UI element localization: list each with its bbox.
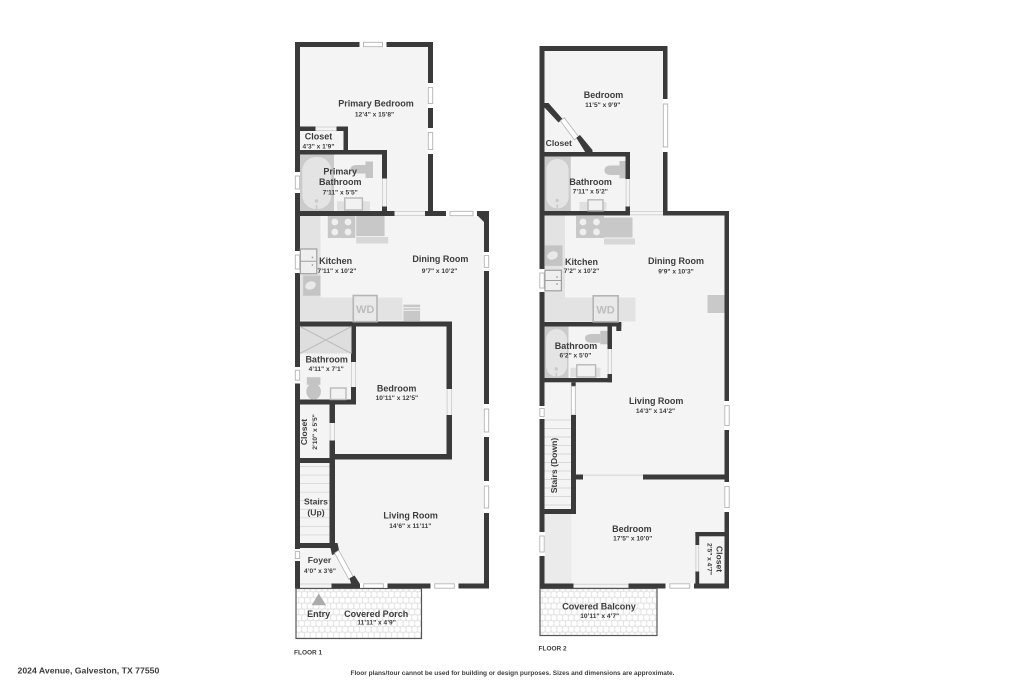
svg-text:6’2" x 5’0": 6’2" x 5’0" [559,353,591,360]
svg-text:Foyer: Foyer [308,555,332,565]
svg-text:Bedroom: Bedroom [612,524,652,534]
svg-text:Primary: Primary [323,167,357,177]
svg-text:FLOOR 1: FLOOR 1 [294,650,323,657]
svg-text:7’11" x 10’2": 7’11" x 10’2" [318,268,357,275]
svg-text:Primary Bedroom: Primary Bedroom [338,98,414,108]
svg-text:Bathroom: Bathroom [555,341,598,351]
svg-text:Kitchen: Kitchen [565,257,598,267]
svg-text:11’5" x 9’9": 11’5" x 9’9" [585,102,620,109]
svg-text:Living Room: Living Room [629,396,684,406]
svg-text:10’11" x 4’7": 10’11" x 4’7" [580,613,619,620]
svg-text:Closet: Closet [305,132,333,142]
svg-text:Bathroom: Bathroom [319,177,362,187]
svg-text:WD: WD [596,305,614,317]
svg-text:7’11" x 5’2": 7’11" x 5’2" [573,189,608,196]
svg-text:Dining Room: Dining Room [412,254,468,264]
svg-text:Bedroom: Bedroom [584,90,624,100]
svg-text:Bedroom: Bedroom [377,384,417,394]
svg-text:9’7" x 10’2": 9’7" x 10’2" [422,268,458,275]
svg-text:7’11" x 5’5": 7’11" x 5’5" [323,190,358,197]
svg-text:11’11" x 4’9": 11’11" x 4’9" [357,620,396,627]
svg-text:4’11" x 7’1": 4’11" x 7’1" [309,366,344,373]
svg-text:WD: WD [356,304,374,316]
svg-text:Dining Room: Dining Room [648,256,704,266]
svg-text:Entry: Entry [307,609,330,619]
svg-text:9’9" x 10’3": 9’9" x 10’3" [658,268,694,275]
svg-text:Bathroom: Bathroom [305,355,348,365]
svg-text:Closet: Closet [299,419,309,445]
svg-text:Bathroom: Bathroom [569,177,612,187]
svg-text:2024 Avenue, Galveston, TX 775: 2024 Avenue, Galveston, TX 77550 [18,666,160,676]
svg-text:Kitchen: Kitchen [319,256,352,266]
svg-text:4’3" x 1’9": 4’3" x 1’9" [303,144,335,151]
svg-text:14’3" x 14’2": 14’3" x 14’2" [636,408,675,415]
svg-text:Closet: Closet [715,546,725,572]
svg-text:4’0" x 3’6": 4’0" x 3’6" [304,568,336,575]
svg-text:17’5" x 10’0": 17’5" x 10’0" [613,536,652,543]
svg-text:Stairs (Down): Stairs (Down) [549,438,559,494]
svg-text:(Up): (Up) [307,508,324,518]
svg-text:Covered Balcony: Covered Balcony [562,602,636,612]
svg-text:Floor plans/tour cannot be use: Floor plans/tour cannot be used for buil… [351,670,675,677]
svg-text:2’10" x 5’5": 2’10" x 5’5" [312,414,319,450]
svg-text:14’6" x 11’11": 14’6" x 11’11" [389,523,431,530]
svg-text:Closet: Closet [546,138,572,148]
svg-text:Stairs: Stairs [304,497,328,507]
svg-text:12’4" x 15’8": 12’4" x 15’8" [355,112,394,119]
svg-text:7’2" x 10’2": 7’2" x 10’2" [564,268,600,275]
svg-text:Covered Porch: Covered Porch [344,609,408,619]
svg-text:10’11" x 12’5": 10’11" x 12’5" [376,395,419,402]
svg-text:Living Room: Living Room [383,511,438,521]
svg-text:FLOOR 2: FLOOR 2 [539,646,568,653]
svg-text:2’5" x 4’7": 2’5" x 4’7" [706,543,713,575]
